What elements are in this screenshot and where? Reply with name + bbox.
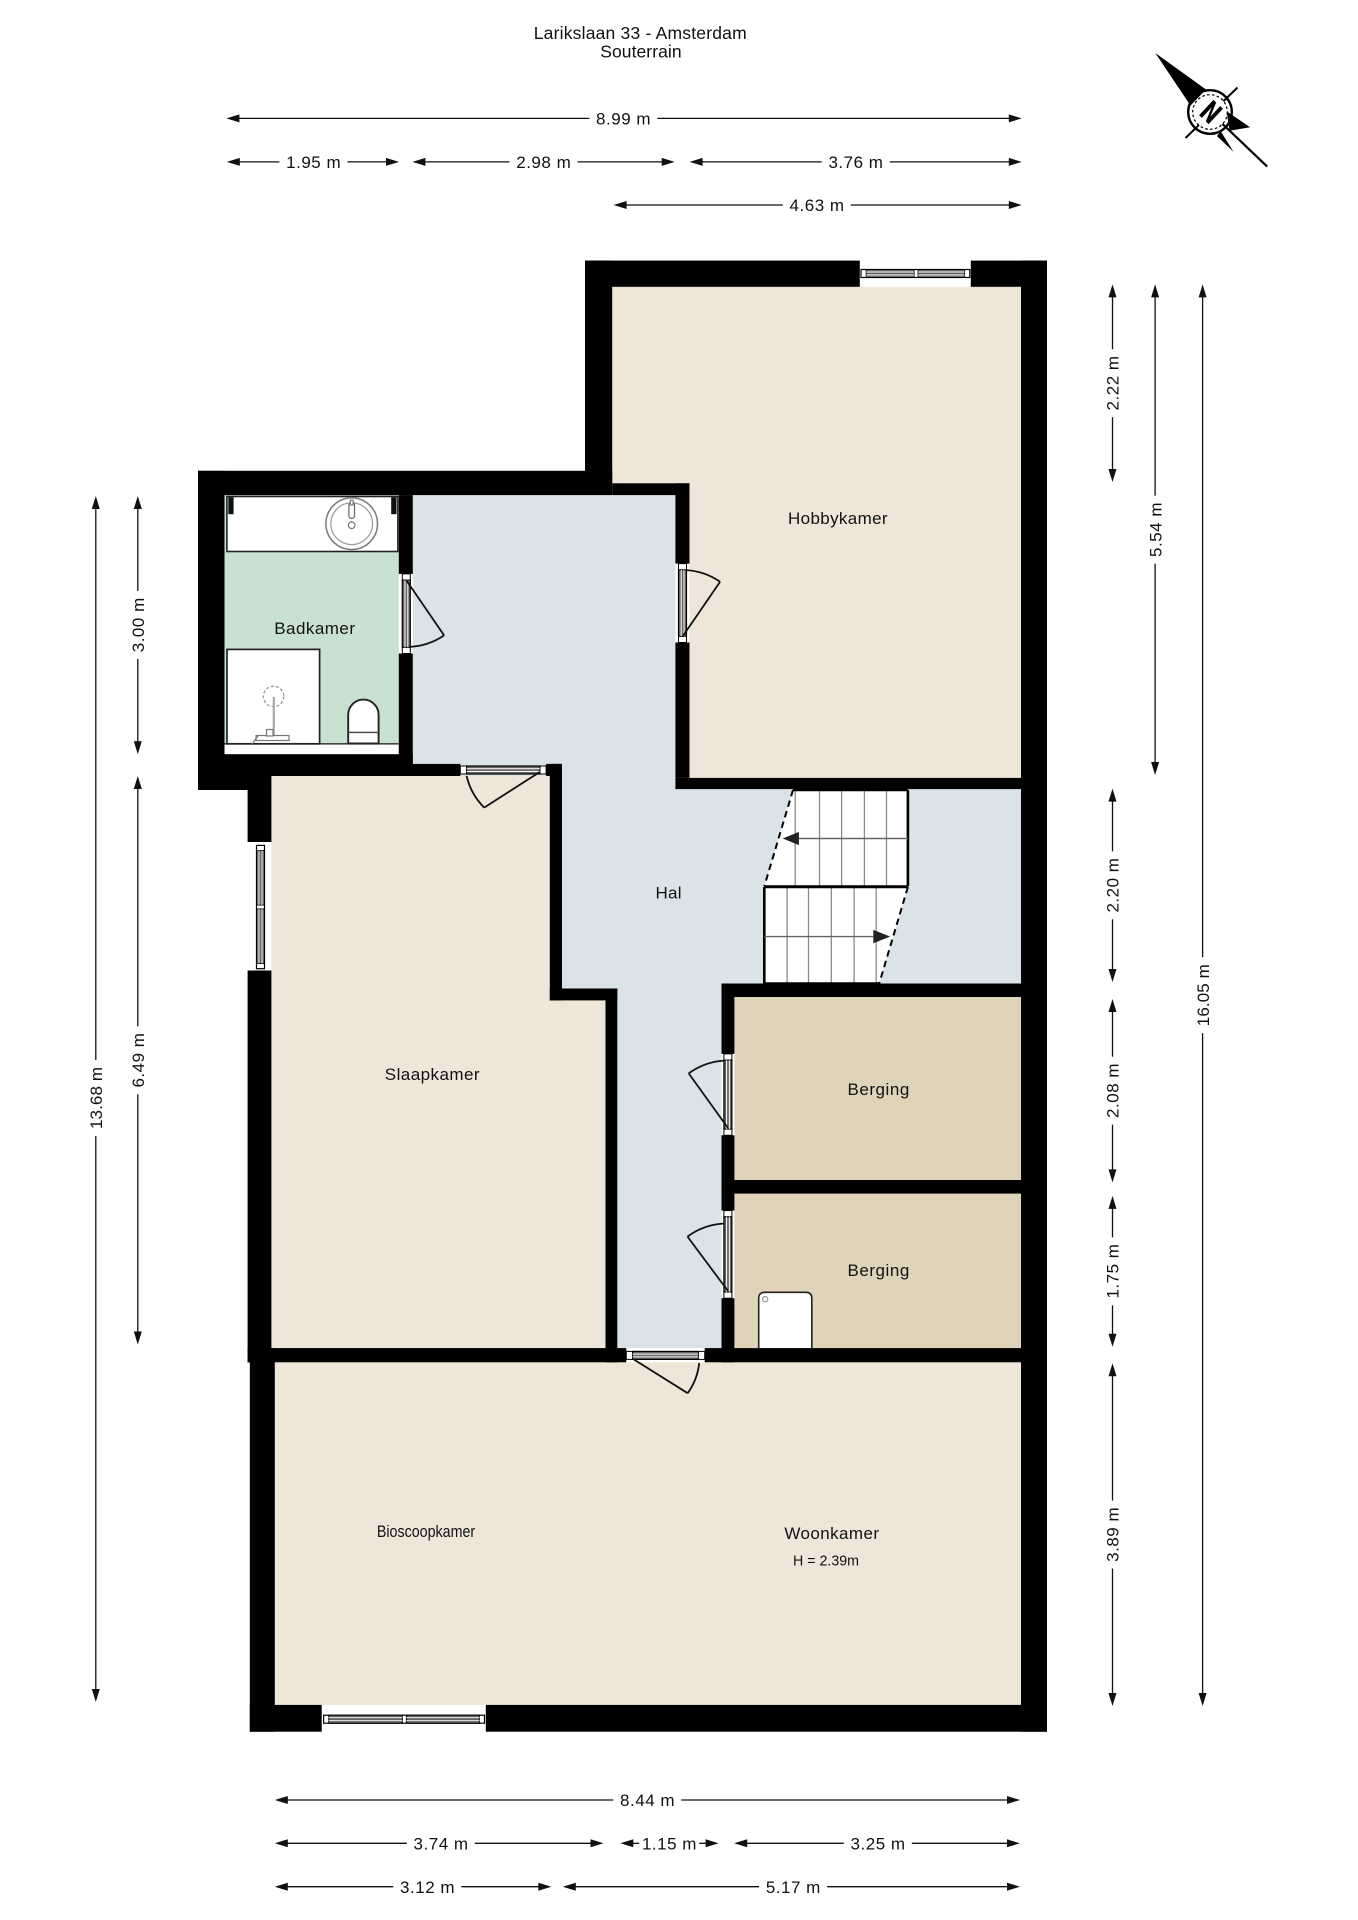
svg-text:Hal: Hal xyxy=(656,883,682,902)
svg-text:5.17 m: 5.17 m xyxy=(766,1878,821,1897)
svg-text:2.08 m: 2.08 m xyxy=(1104,1063,1123,1118)
svg-text:4.63 m: 4.63 m xyxy=(790,196,845,215)
svg-text:2.20 m: 2.20 m xyxy=(1104,858,1123,913)
svg-text:8.99 m: 8.99 m xyxy=(596,110,651,129)
svg-text:Berging: Berging xyxy=(847,1261,909,1280)
svg-text:2.98 m: 2.98 m xyxy=(516,153,571,172)
svg-text:3.25 m: 3.25 m xyxy=(851,1835,906,1854)
svg-text:3.76 m: 3.76 m xyxy=(828,153,883,172)
svg-text:2.22 m: 2.22 m xyxy=(1104,356,1123,411)
svg-text:3.89 m: 3.89 m xyxy=(1104,1507,1123,1562)
svg-text:Berging: Berging xyxy=(847,1080,909,1099)
svg-text:3.00 m: 3.00 m xyxy=(129,598,148,653)
svg-text:Woonkamer: Woonkamer xyxy=(784,1524,879,1543)
svg-text:Bioscoopkamer: Bioscoopkamer xyxy=(377,1522,476,1541)
svg-text:Souterrain: Souterrain xyxy=(600,41,681,61)
svg-text:1.95 m: 1.95 m xyxy=(286,153,341,172)
svg-text:Larikslaan 33 - Amsterdam: Larikslaan 33 - Amsterdam xyxy=(534,23,747,43)
svg-text:3.12 m: 3.12 m xyxy=(400,1878,455,1897)
svg-text:Slaapkamer: Slaapkamer xyxy=(385,1065,480,1084)
svg-text:8.44 m: 8.44 m xyxy=(620,1791,675,1810)
svg-text:13.68 m: 13.68 m xyxy=(87,1067,106,1129)
svg-text:3.74 m: 3.74 m xyxy=(414,1835,469,1854)
svg-text:1.15 m: 1.15 m xyxy=(642,1835,697,1854)
svg-text:5.54 m: 5.54 m xyxy=(1146,502,1165,557)
svg-text:Hobbykamer: Hobbykamer xyxy=(788,509,888,528)
svg-text:16.05 m: 16.05 m xyxy=(1194,964,1213,1026)
svg-text:H = 2.39m: H = 2.39m xyxy=(793,1552,859,1569)
svg-text:6.49 m: 6.49 m xyxy=(129,1033,148,1088)
svg-text:Badkamer: Badkamer xyxy=(274,619,355,638)
svg-text:1.75 m: 1.75 m xyxy=(1104,1244,1123,1299)
